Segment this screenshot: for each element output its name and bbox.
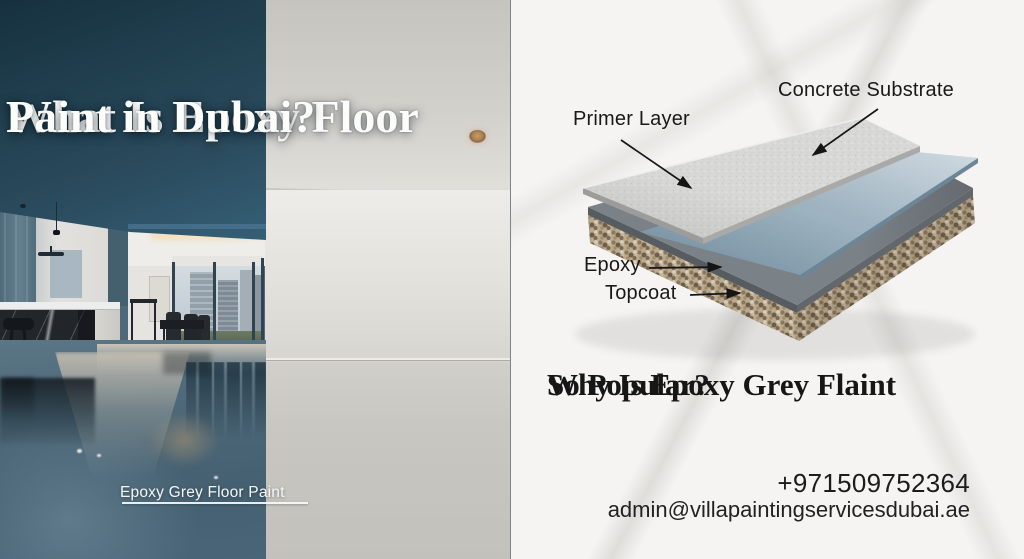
floor-highlight-speck <box>77 449 82 453</box>
floor-highlight-speck <box>97 454 101 457</box>
label-concrete-substrate: Concrete Substrate <box>778 79 954 102</box>
ceiling-fascia <box>128 224 266 229</box>
baseboard-line <box>265 358 511 361</box>
contact-phone: +971509752364 <box>570 468 970 499</box>
heading-line-2: So Popular? <box>547 365 710 404</box>
bar-stool-seat <box>3 318 34 330</box>
ceiling-sensor <box>20 204 26 208</box>
island-countertop <box>0 302 120 310</box>
title-line-2: Paint in Dubai? <box>6 89 315 145</box>
floor-stool-reflection <box>2 378 34 420</box>
ceiling-downlight <box>469 130 486 143</box>
label-primer-layer: Primer Layer <box>573 108 690 131</box>
pillar-window-reflection <box>50 250 82 298</box>
console-table <box>130 299 157 303</box>
window-mullion <box>213 262 216 347</box>
pendant-light <box>53 230 60 235</box>
glass-reflection-streaks <box>4 208 34 308</box>
window-mullion <box>252 262 255 347</box>
ceiling-fan-stem <box>50 246 52 253</box>
floor-highlight-speck <box>214 476 218 479</box>
pendant-cord <box>56 202 57 232</box>
window-mullion <box>261 258 264 347</box>
photo-caption: Epoxy Grey Floor Paint <box>120 484 360 502</box>
label-topcoat: Topcoat <box>605 282 676 305</box>
natural-floor <box>265 362 511 559</box>
floor-chair-reflection <box>163 352 211 374</box>
city-building-3 <box>240 270 252 340</box>
photo-panel: What Is Epoxy Floor Paint in Dubai? Epox… <box>0 0 511 559</box>
contact-email: admin@villapaintingservicesdubai.ae <box>510 497 970 523</box>
dining-table <box>160 320 204 329</box>
natural-wall <box>265 190 511 362</box>
label-epoxy: Epoxy <box>584 254 641 277</box>
caption-underline <box>122 502 308 504</box>
banner-root: What Is Epoxy Floor Paint in Dubai? Epox… <box>0 0 1024 559</box>
